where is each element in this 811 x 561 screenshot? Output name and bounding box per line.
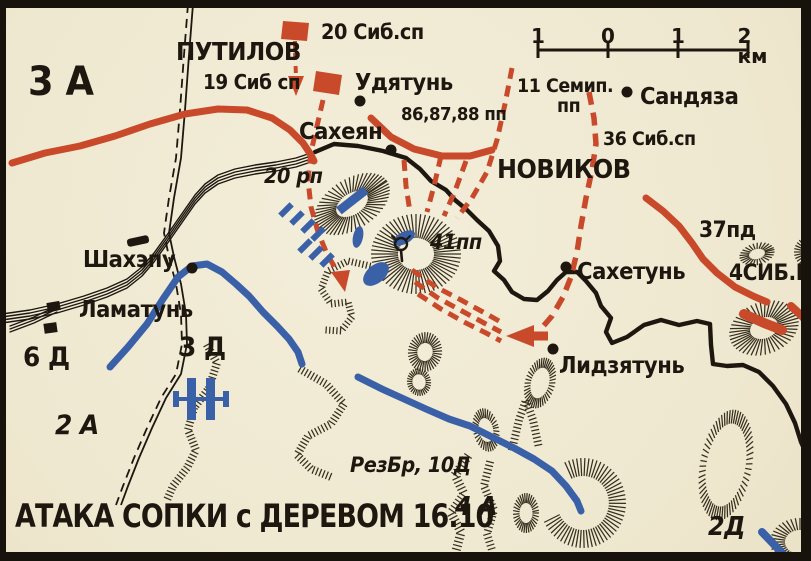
division-label-6d: 6 Д [23, 344, 70, 371]
place-label-udyatun: Удятунь [355, 72, 453, 95]
army-label-2a: 2 А [55, 412, 99, 439]
place-label-saheyan: Сахеян [299, 121, 382, 144]
map-canvas: 3 А ПУТИЛОВ 20 Сиб.сп 19 Сиб сп Удятунь … [0, 0, 811, 561]
unit-label-36sib: 36 Сиб.сп [603, 130, 696, 149]
division-label-2d: 2Д [708, 514, 745, 540]
map-labels: 3 А ПУТИЛОВ 20 Сиб.сп 19 Сиб сп Удятунь … [0, 0, 811, 561]
unit-label-868788pp: 86,87,88 пп [401, 106, 506, 124]
unit-label-20sib: 20 Сиб.сп [321, 22, 424, 43]
unit-label-20rp: 20 рп [264, 166, 322, 187]
map-title: АТАКА СОПКИ с ДЕРЕВОМ 16.10 [15, 500, 493, 532]
commander-label-novikov: НОВИКОВ [497, 157, 631, 183]
place-label-shahepu: Шахэпу [83, 249, 175, 272]
place-label-lidzyatun: Лидзятунь [559, 355, 684, 378]
unit-label-37pd: 37пд [699, 220, 756, 242]
scale-tick-label-1left: 1 [531, 26, 545, 46]
unit-label-11semip-line1: 11 Семип. [517, 77, 613, 96]
scale-tick-label-2km: 2 км [738, 26, 787, 66]
scale-tick-label-0: 0 [601, 26, 615, 46]
unit-label-41pp: 41пп [430, 232, 482, 253]
army-label-3a: 3 А [28, 62, 94, 102]
unit-label-4sibk: 4СИБ.К [729, 263, 811, 285]
scale-tick-label-1right: 1 [671, 26, 685, 46]
division-label-3d: 3 Д [179, 334, 226, 361]
commander-label-putilov: ПУТИЛОВ [176, 39, 301, 64]
place-label-sandyaza: Сандяза [640, 86, 738, 109]
place-label-sahetun: Сахетунь [577, 261, 685, 284]
unit-label-rezbr: РезБр, 10Д [350, 455, 471, 476]
unit-label-19sib: 19 Сиб сп [203, 72, 300, 92]
unit-label-11semip-line2: пп [557, 97, 580, 116]
place-label-lamatun: Ламатунь [79, 299, 193, 322]
